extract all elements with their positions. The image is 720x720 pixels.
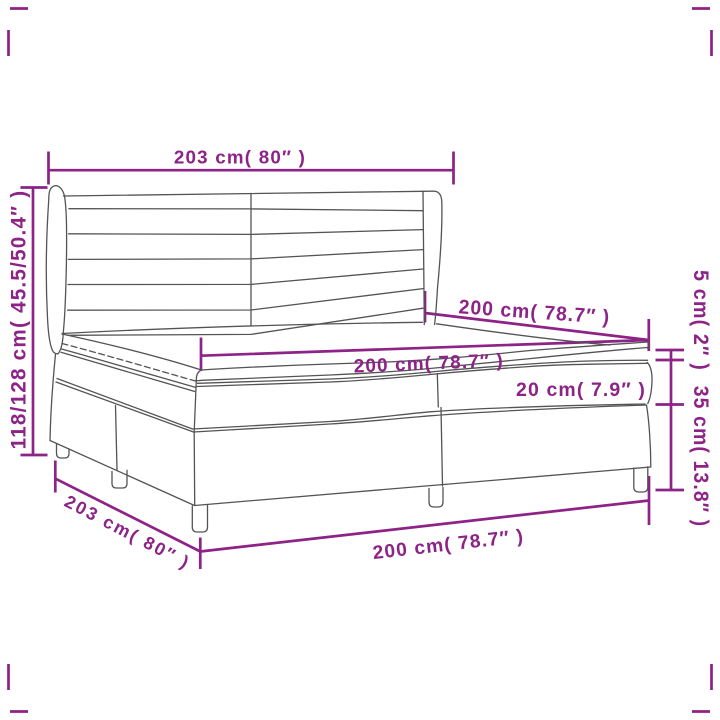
svg-text:35 cm( 13.8″ ): 35 cm( 13.8″ ) — [689, 386, 712, 528]
svg-text:118/128 cm( 45.5/50.4″ ): 118/128 cm( 45.5/50.4″ ) — [7, 190, 30, 450]
svg-text:20 cm( 7.9″ ): 20 cm( 7.9″ ) — [516, 380, 646, 401]
svg-text:203 cm( 80″ ): 203 cm( 80″ ) — [174, 147, 306, 168]
svg-text:5 cm( 2″ ): 5 cm( 2″ ) — [689, 270, 712, 371]
